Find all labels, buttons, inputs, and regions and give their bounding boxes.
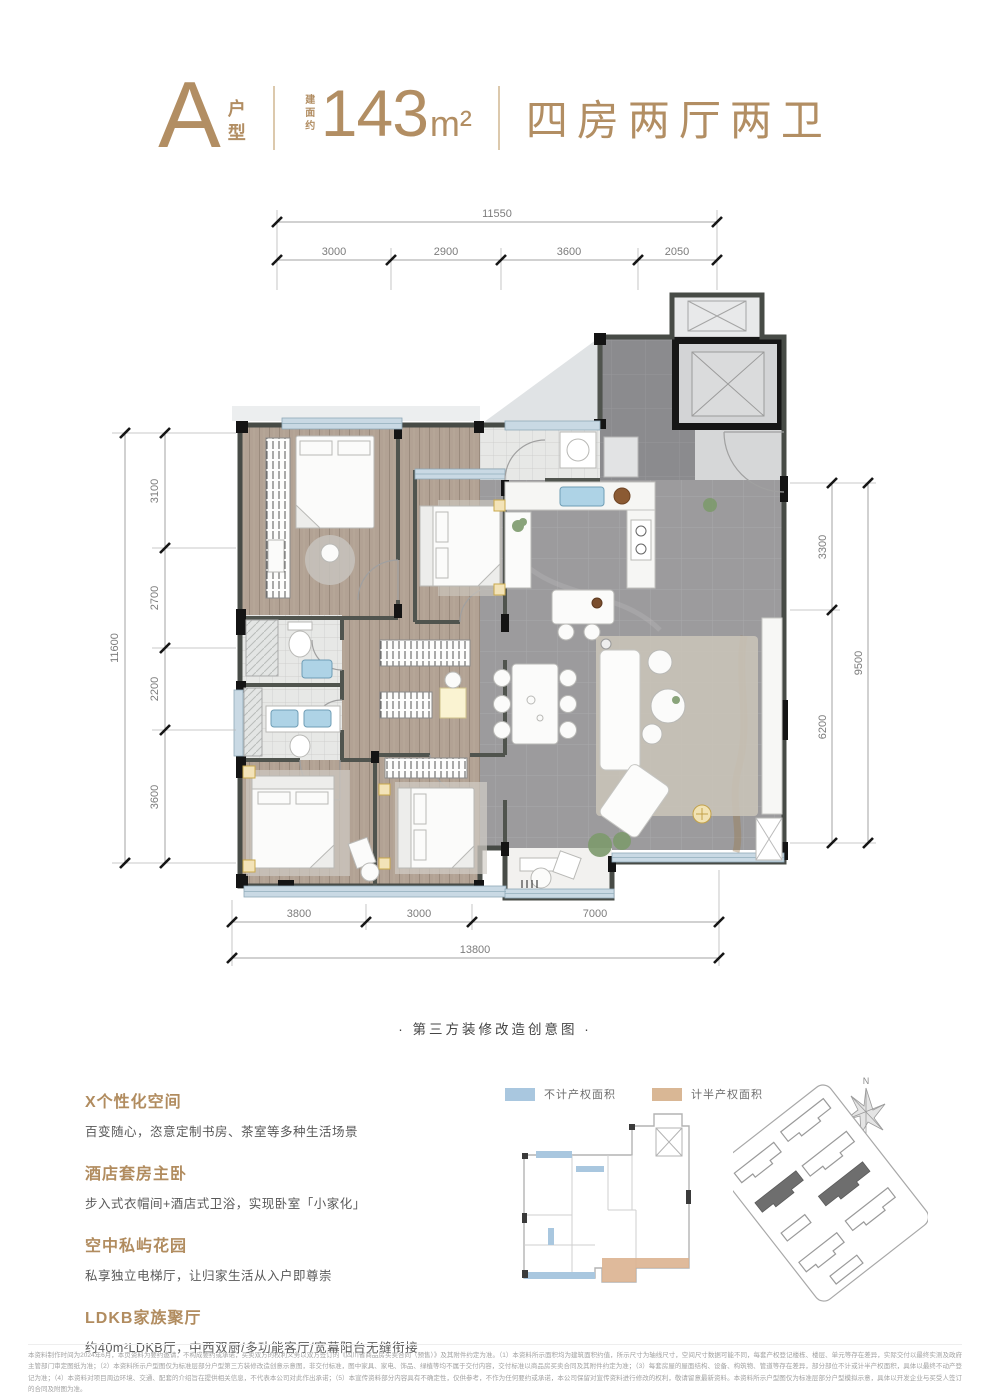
area-key-thumbnail — [512, 1110, 712, 1295]
dim-label: 11550 — [482, 208, 512, 220]
area-unit: m² — [430, 103, 472, 145]
plan-caption: · 第三方装修改造创意图 · — [0, 1018, 990, 1038]
legend-swatch-tan — [652, 1088, 682, 1101]
site-plan: N — [733, 1070, 928, 1305]
area-group: 建面约 143 m² — [301, 84, 472, 145]
dim-label: 11600 — [109, 633, 121, 663]
dim-label: 3100 — [149, 479, 161, 503]
dim-label: 3300 — [817, 535, 829, 559]
dim-label: 3600 — [149, 785, 161, 809]
dim-label: 3000 — [322, 246, 346, 258]
dim-label: 3000 — [407, 908, 431, 920]
flyer-page: A 户 型 建面约 143 m² 四房两厅两卫 — [0, 0, 990, 1400]
unit-type-letter: A — [158, 70, 221, 159]
feature-title: 空中私屿花园 — [85, 1232, 465, 1256]
area-prefix: 建面约 — [301, 94, 316, 133]
feature-title: 酒店套房主卧 — [85, 1160, 465, 1184]
header-divider — [273, 86, 275, 150]
dim-label: 3600 — [557, 246, 581, 258]
thumb-tan-area — [602, 1258, 689, 1282]
unit-type-word: 户 型 — [228, 98, 247, 145]
legend-item-no-property: 不计产权面积 — [505, 1086, 616, 1102]
dim-label: 7000 — [583, 908, 607, 920]
floor-plan: 11550 3000 2900 3600 2050 11600 3100 270… — [0, 190, 990, 980]
feature-item: 酒店套房主卧 步入式衣帽间+酒店式卫浴，实现卧室「小家化」 — [85, 1160, 465, 1212]
site-parcel — [733, 1081, 928, 1305]
dim-label: 3800 — [287, 908, 311, 920]
feature-title: X个性化空间 — [85, 1088, 465, 1112]
dim-label: 2900 — [434, 246, 458, 258]
dim-label: 2700 — [149, 586, 161, 610]
dim-label: 9500 — [853, 651, 865, 675]
legend-swatch-blue — [505, 1088, 535, 1101]
dim-label: 6200 — [817, 715, 829, 739]
feature-title: LDKB家族聚厅 — [85, 1304, 465, 1328]
dim-label: 13800 — [460, 944, 491, 956]
feature-desc: 百变随心，恣意定制书房、茶室等多种生活场景 — [85, 1121, 465, 1140]
elevator-shaft — [672, 295, 784, 430]
feature-list: X个性化空间 百变随心，恣意定制书房、茶室等多种生活场景 酒店套房主卧 步入式衣… — [85, 1088, 465, 1376]
feature-desc: 步入式衣帽间+酒店式卫浴，实现卧室「小家化」 — [85, 1193, 465, 1212]
feature-desc: 私享独立电梯厅，让归家生活从入户即尊崇 — [85, 1265, 465, 1284]
area-legend: 不计产权面积 计半产权面积 — [505, 1086, 763, 1102]
area-value: 143 — [321, 84, 428, 143]
compass-label: N — [863, 1076, 870, 1086]
feature-item: X个性化空间 百变随心，恣意定制书房、茶室等多种生活场景 — [85, 1088, 465, 1140]
disclaimer-text: 本资料制作时间为2024年6月，本页资料为要约邀请，不构成要约或承诺，买卖双方的… — [28, 1344, 962, 1396]
dim-label: 2200 — [149, 677, 161, 701]
legend-label: 不计产权面积 — [544, 1086, 616, 1102]
header-divider — [498, 86, 500, 150]
feature-item: 空中私屿花园 私享独立电梯厅，让归家生活从入户即尊崇 — [85, 1232, 465, 1284]
header: A 户 型 建面约 143 m² 四房两厅两卫 — [0, 70, 990, 159]
dim-label: 2050 — [665, 246, 689, 258]
rooms-label: 四房两厅两卫 — [526, 87, 832, 148]
